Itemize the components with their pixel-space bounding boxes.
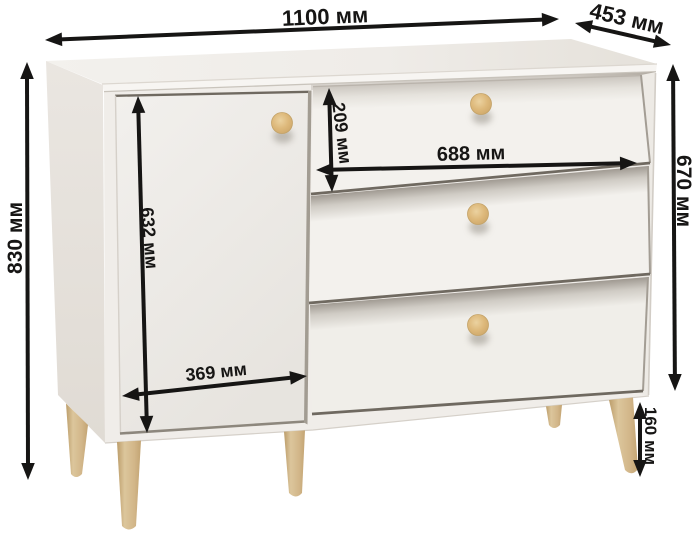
- svg-text:160 мм: 160 мм: [641, 407, 660, 465]
- svg-text:670 мм: 670 мм: [672, 155, 695, 227]
- svg-text:1100 мм: 1100 мм: [281, 2, 368, 31]
- svg-text:688 мм: 688 мм: [436, 142, 505, 166]
- svg-text:830 мм: 830 мм: [4, 202, 27, 274]
